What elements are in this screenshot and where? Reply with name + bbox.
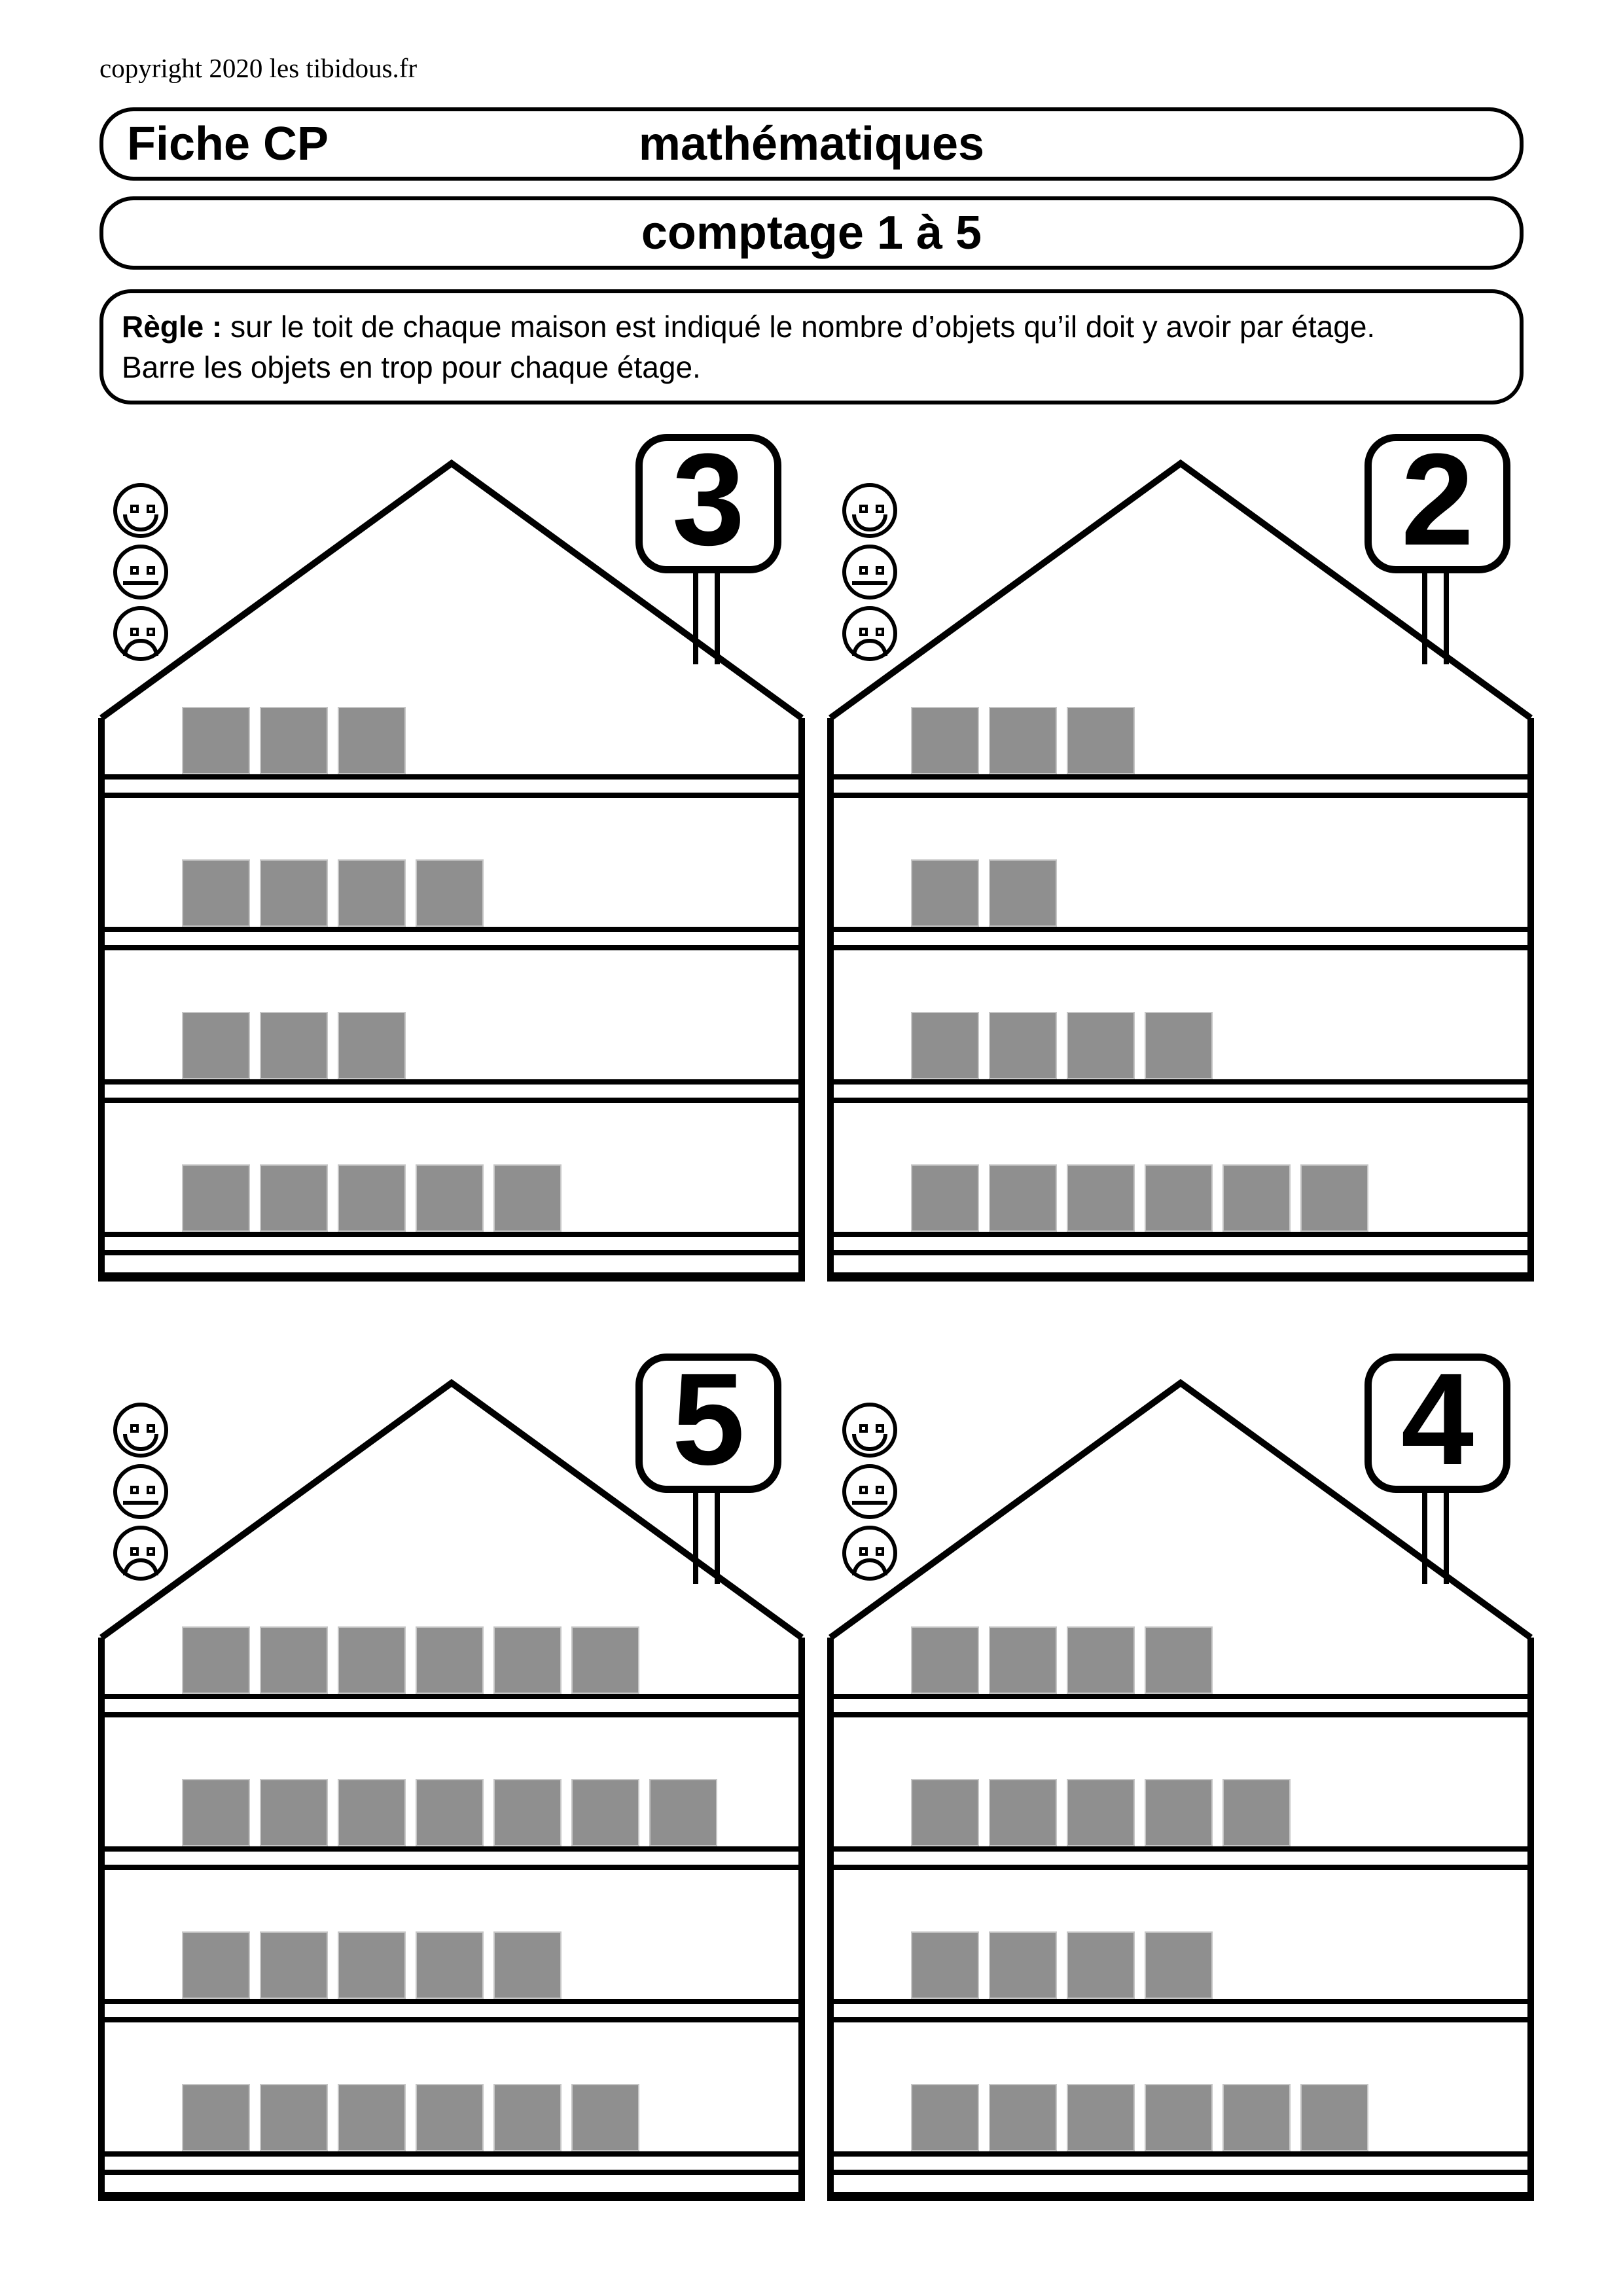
- object-square[interactable]: [649, 1779, 717, 1846]
- object-square[interactable]: [1145, 1012, 1213, 1079]
- floor-objects: [911, 859, 1057, 927]
- floor-objects: [182, 1779, 717, 1846]
- eye-icon: [147, 1424, 155, 1433]
- eye-icon: [859, 1547, 868, 1556]
- object-square[interactable]: [911, 859, 979, 927]
- smile-mouth: [852, 514, 887, 531]
- object-square[interactable]: [260, 1164, 328, 1232]
- rule-label: Règle :: [122, 310, 222, 344]
- object-square[interactable]: [1067, 1779, 1135, 1846]
- object-square[interactable]: [1145, 1164, 1213, 1232]
- object-square[interactable]: [416, 1779, 484, 1846]
- floor-objects: [182, 707, 406, 774]
- floor-objects: [911, 1779, 1291, 1846]
- eye-icon: [147, 505, 155, 513]
- smile-mouth: [123, 1434, 158, 1451]
- object-square[interactable]: [338, 1012, 406, 1079]
- object-square[interactable]: [182, 1779, 250, 1846]
- object-square[interactable]: [338, 707, 406, 774]
- object-square[interactable]: [571, 1779, 639, 1846]
- object-square[interactable]: [260, 1931, 328, 1999]
- eye-icon: [876, 1424, 884, 1433]
- object-square[interactable]: [416, 1626, 484, 1694]
- object-square[interactable]: [989, 1164, 1057, 1232]
- object-square[interactable]: [911, 1931, 979, 1999]
- smile-mouth: [852, 1434, 887, 1451]
- rule-line-2: Barre les objets en trop pour chaque éta…: [122, 347, 1501, 387]
- smile-mouth: [123, 514, 158, 531]
- rule-box: Règle : sur le toit de chaque maison est…: [99, 289, 1524, 404]
- eye-icon: [130, 1486, 139, 1494]
- house: 2: [827, 434, 1534, 1282]
- eye-icon: [859, 505, 868, 513]
- object-square[interactable]: [1222, 1779, 1291, 1846]
- sad-mouth: [852, 639, 887, 656]
- title-box: comptage 1 à 5: [99, 196, 1524, 270]
- object-square[interactable]: [911, 1012, 979, 1079]
- object-square[interactable]: [911, 1164, 979, 1232]
- rule-text-1: sur le toit de chaque maison est indiqué…: [230, 310, 1375, 344]
- neutral-mouth: [123, 1501, 158, 1505]
- object-square[interactable]: [1067, 1164, 1135, 1232]
- object-square[interactable]: [989, 1931, 1057, 1999]
- object-square[interactable]: [182, 859, 250, 927]
- rating-smileys: [113, 1403, 168, 1587]
- happy-face-icon: [842, 1403, 897, 1458]
- object-square[interactable]: [338, 2084, 406, 2151]
- object-square[interactable]: [911, 2084, 979, 2151]
- object-square[interactable]: [182, 1164, 250, 1232]
- object-square[interactable]: [260, 859, 328, 927]
- eye-icon: [147, 1547, 155, 1556]
- rule-text-2: Barre les objets en trop pour chaque éta…: [122, 350, 701, 384]
- sad-mouth: [123, 639, 158, 656]
- floor-objects: [182, 1012, 406, 1079]
- object-square[interactable]: [571, 1626, 639, 1694]
- object-square[interactable]: [493, 1626, 562, 1694]
- floor-objects: [182, 1931, 562, 1999]
- subject-label: mathématiques: [103, 117, 1520, 171]
- eye-icon: [859, 1486, 868, 1494]
- object-square[interactable]: [1145, 1931, 1213, 1999]
- object-square[interactable]: [1067, 2084, 1135, 2151]
- floor-objects: [911, 1164, 1368, 1232]
- house: 5: [98, 1354, 805, 2201]
- object-square[interactable]: [1067, 707, 1135, 774]
- roof-sign: 4: [1364, 1354, 1510, 1493]
- object-square[interactable]: [571, 2084, 639, 2151]
- eye-icon: [147, 628, 155, 636]
- floor-objects: [911, 707, 1135, 774]
- floor-objects: [182, 1626, 639, 1694]
- object-square[interactable]: [338, 1779, 406, 1846]
- object-square[interactable]: [338, 1626, 406, 1694]
- object-square[interactable]: [338, 859, 406, 927]
- neutral-mouth: [852, 1501, 887, 1505]
- neutral-face-icon: [842, 545, 897, 600]
- floor-objects: [911, 1931, 1213, 1999]
- sheet-header-box: Fiche CP mathématiques: [99, 107, 1524, 181]
- sad-face-icon: [113, 606, 168, 661]
- object-square[interactable]: [260, 1012, 328, 1079]
- object-square[interactable]: [1300, 2084, 1368, 2151]
- object-square[interactable]: [1067, 1931, 1135, 1999]
- object-square[interactable]: [989, 2084, 1057, 2151]
- roof-sign: 5: [635, 1354, 781, 1493]
- eye-icon: [130, 1424, 139, 1433]
- sad-face-icon: [113, 1526, 168, 1581]
- object-square[interactable]: [989, 707, 1057, 774]
- object-square[interactable]: [1145, 1779, 1213, 1846]
- floor-objects: [182, 1164, 562, 1232]
- sign-number: 4: [1401, 1354, 1474, 1485]
- happy-face-icon: [842, 483, 897, 538]
- eye-icon: [876, 566, 884, 575]
- object-square[interactable]: [989, 1626, 1057, 1694]
- eye-icon: [130, 505, 139, 513]
- rule-line-1: Règle : sur le toit de chaque maison est…: [122, 306, 1501, 347]
- neutral-mouth: [852, 581, 887, 585]
- object-square[interactable]: [493, 1779, 562, 1846]
- object-square[interactable]: [1222, 1164, 1291, 1232]
- object-square[interactable]: [182, 707, 250, 774]
- object-square[interactable]: [493, 1164, 562, 1232]
- eye-icon: [876, 1486, 884, 1494]
- floor-objects: [911, 1012, 1213, 1079]
- object-square[interactable]: [1222, 2084, 1291, 2151]
- object-square[interactable]: [493, 2084, 562, 2151]
- neutral-mouth: [123, 581, 158, 585]
- object-square[interactable]: [182, 1931, 250, 1999]
- eye-icon: [859, 628, 868, 636]
- object-square[interactable]: [182, 1626, 250, 1694]
- object-square[interactable]: [416, 1164, 484, 1232]
- object-square[interactable]: [493, 1931, 562, 1999]
- object-square[interactable]: [911, 707, 979, 774]
- sign-number: 2: [1401, 435, 1474, 565]
- object-square[interactable]: [182, 2084, 250, 2151]
- sign-number: 3: [672, 435, 745, 565]
- object-square[interactable]: [989, 1779, 1057, 1846]
- neutral-face-icon: [113, 1464, 168, 1519]
- sad-face-icon: [842, 1526, 897, 1581]
- sad-mouth: [852, 1558, 887, 1575]
- rating-smileys: [842, 1403, 897, 1587]
- sad-face-icon: [842, 606, 897, 661]
- neutral-face-icon: [113, 545, 168, 600]
- object-square[interactable]: [911, 1779, 979, 1846]
- house: 3: [98, 434, 805, 1282]
- object-square[interactable]: [989, 1012, 1057, 1079]
- eye-icon: [876, 628, 884, 636]
- object-square[interactable]: [911, 1626, 979, 1694]
- floor-objects: [182, 859, 484, 927]
- eye-icon: [876, 1547, 884, 1556]
- eye-icon: [130, 1547, 139, 1556]
- object-square[interactable]: [260, 1779, 328, 1846]
- eye-icon: [130, 628, 139, 636]
- object-square[interactable]: [260, 707, 328, 774]
- eye-icon: [859, 566, 868, 575]
- house: 4: [827, 1354, 1534, 2201]
- object-square[interactable]: [182, 1012, 250, 1079]
- copyright-text: copyright 2020 les tibidous.fr: [99, 52, 417, 84]
- eye-icon: [876, 505, 884, 513]
- rating-smileys: [842, 483, 897, 668]
- sign-number: 5: [672, 1354, 745, 1485]
- roof-sign: 3: [635, 434, 781, 573]
- sad-mouth: [123, 1558, 158, 1575]
- rating-smileys: [113, 483, 168, 668]
- object-square[interactable]: [260, 1626, 328, 1694]
- worksheet-page: { "page": { "copyright": "copyright 2020…: [0, 0, 1623, 2296]
- object-square[interactable]: [1145, 1626, 1213, 1694]
- eye-icon: [859, 1424, 868, 1433]
- object-square[interactable]: [1145, 2084, 1213, 2151]
- happy-face-icon: [113, 483, 168, 538]
- worksheet-title: comptage 1 à 5: [103, 206, 1520, 260]
- object-square[interactable]: [338, 1931, 406, 1999]
- floor-objects: [911, 2084, 1368, 2151]
- neutral-face-icon: [842, 1464, 897, 1519]
- floor-objects: [911, 1626, 1213, 1694]
- roof-sign: 2: [1364, 434, 1510, 573]
- floor-objects: [182, 2084, 639, 2151]
- object-square[interactable]: [989, 859, 1057, 927]
- eye-icon: [130, 566, 139, 575]
- object-square[interactable]: [416, 1931, 484, 1999]
- object-square[interactable]: [1067, 1626, 1135, 1694]
- eye-icon: [147, 566, 155, 575]
- object-square[interactable]: [260, 2084, 328, 2151]
- happy-face-icon: [113, 1403, 168, 1458]
- object-square[interactable]: [1067, 1012, 1135, 1079]
- object-square[interactable]: [338, 1164, 406, 1232]
- object-square[interactable]: [416, 859, 484, 927]
- object-square[interactable]: [1300, 1164, 1368, 1232]
- object-square[interactable]: [416, 2084, 484, 2151]
- eye-icon: [147, 1486, 155, 1494]
